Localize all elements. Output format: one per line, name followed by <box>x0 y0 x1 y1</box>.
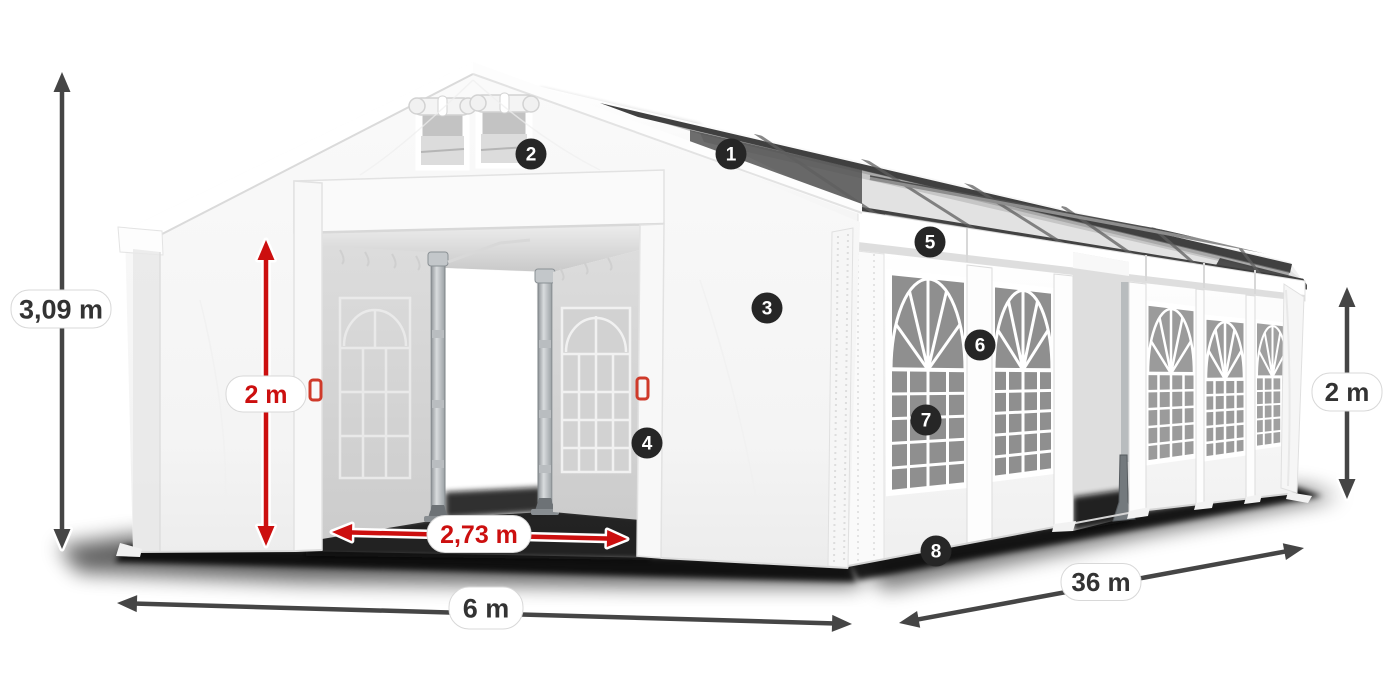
svg-text:2: 2 <box>526 145 537 166</box>
svg-text:3,09 m: 3,09 m <box>19 294 103 324</box>
svg-text:2 m: 2 m <box>1325 377 1370 407</box>
svg-text:3: 3 <box>762 299 773 320</box>
svg-text:6: 6 <box>975 336 986 357</box>
svg-text:6 m: 6 m <box>463 594 510 624</box>
svg-text:2,73 m: 2,73 m <box>440 521 518 549</box>
svg-text:7: 7 <box>921 411 932 432</box>
svg-text:36 m: 36 m <box>1071 567 1130 597</box>
svg-text:5: 5 <box>925 233 936 254</box>
svg-text:4: 4 <box>642 434 653 455</box>
svg-text:1: 1 <box>726 145 737 166</box>
svg-text:2 m: 2 m <box>244 381 287 409</box>
svg-text:8: 8 <box>931 542 942 563</box>
